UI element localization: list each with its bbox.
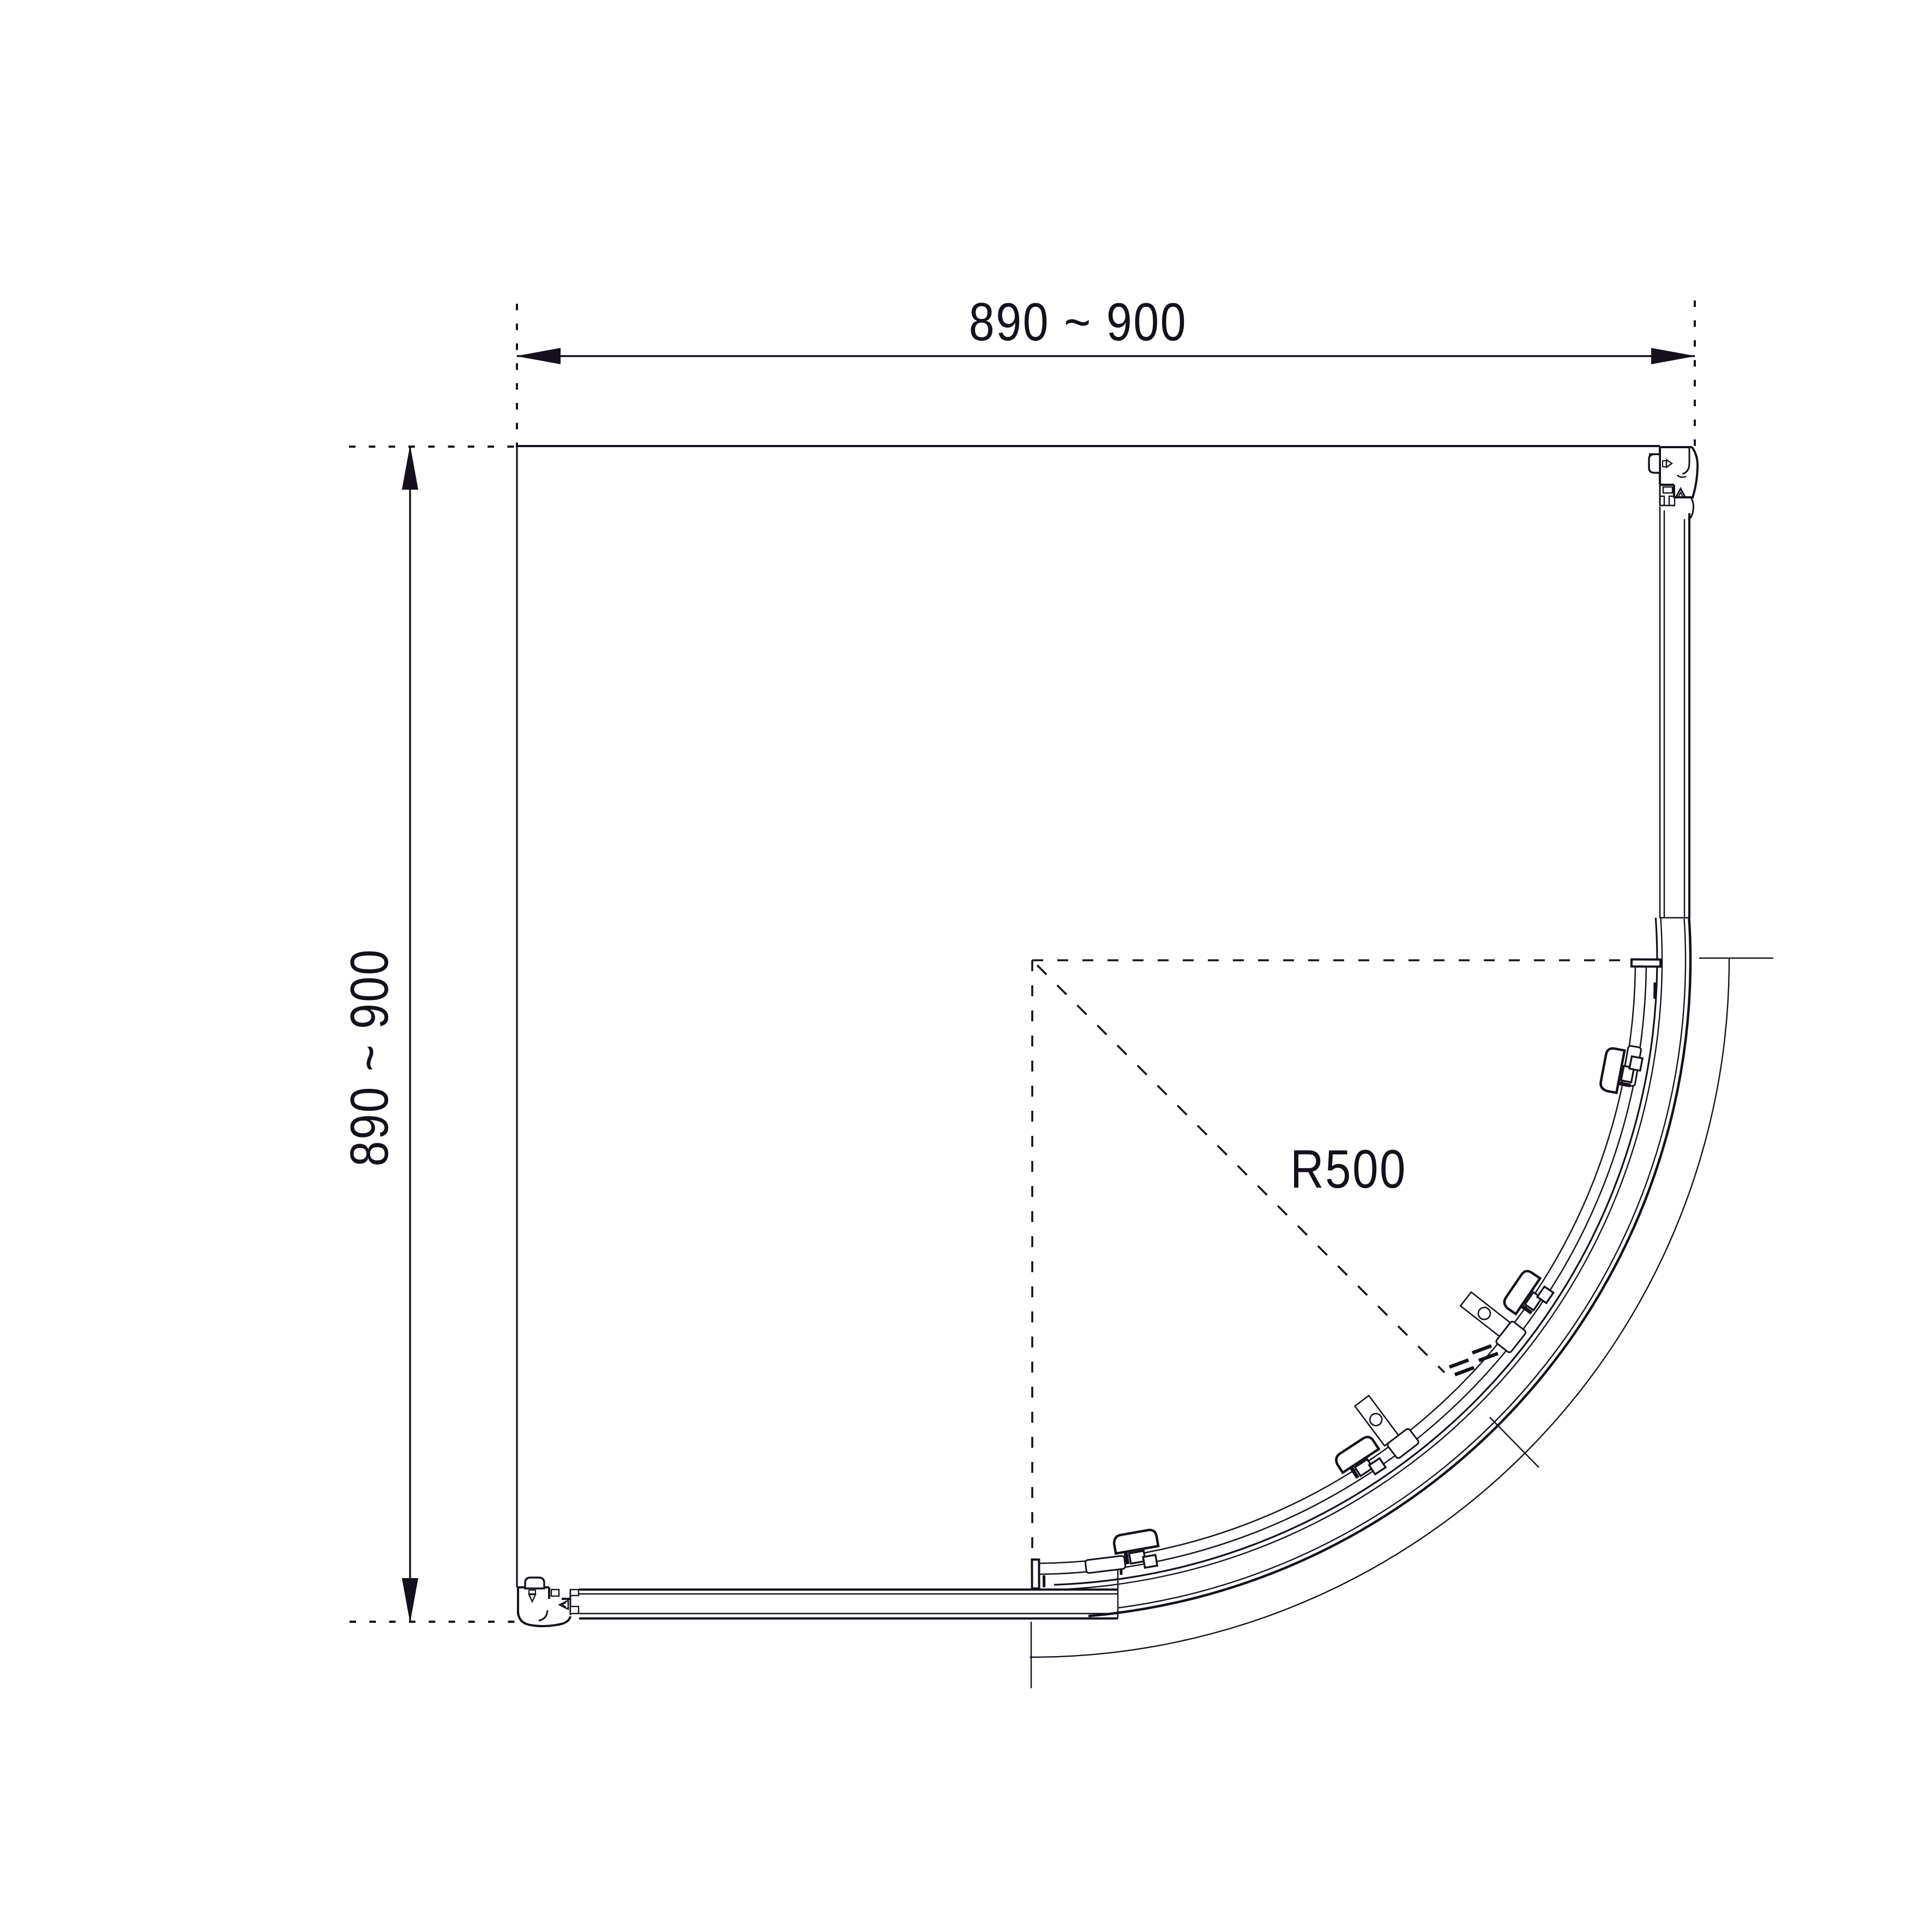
svg-text:890 ~ 900: 890 ~ 900 — [340, 948, 399, 1166]
svg-text:890 ~ 900: 890 ~ 900 — [969, 292, 1187, 352]
svg-text:R500: R500 — [1290, 1139, 1407, 1200]
